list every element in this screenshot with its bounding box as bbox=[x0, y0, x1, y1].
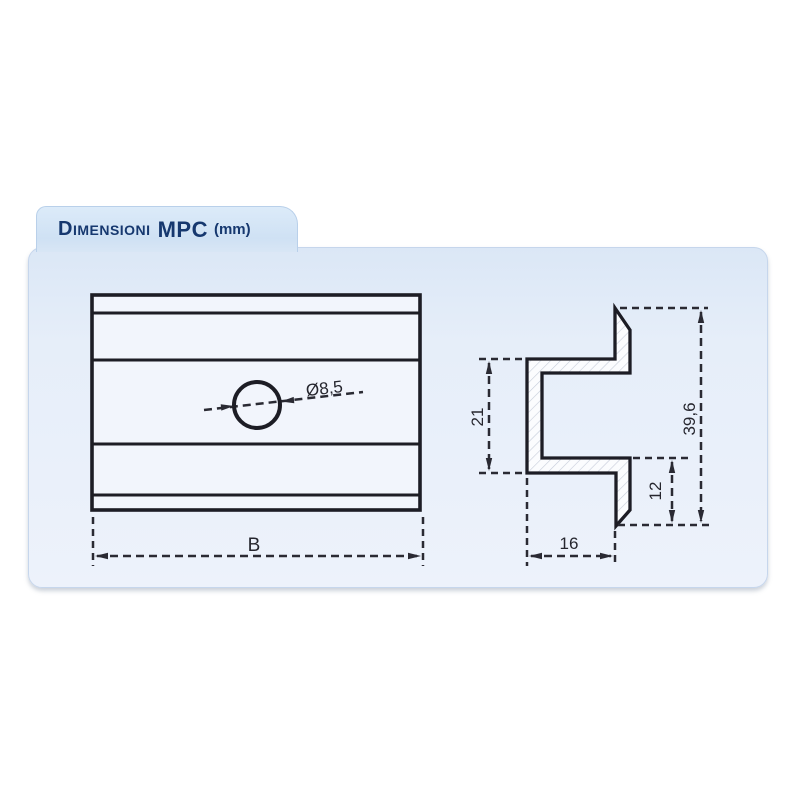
side-view: 21 39,6 12 bbox=[468, 308, 710, 566]
page: Dimensioni MPC (mm) Ø8,5 bbox=[0, 0, 800, 800]
depth-dimension-label: 16 bbox=[560, 534, 579, 553]
dimension-arrow bbox=[95, 553, 108, 559]
dimension-12: 12 bbox=[633, 458, 689, 523]
unit-label: (mm) bbox=[214, 221, 251, 238]
dimension-arrow bbox=[669, 460, 675, 473]
width-dimension-label: B bbox=[248, 535, 261, 556]
dimension-16: 16 bbox=[527, 478, 615, 566]
plate-outline bbox=[92, 295, 420, 510]
lip-height-label: 12 bbox=[646, 482, 665, 501]
dimension-arrow bbox=[669, 510, 675, 523]
dimension-arrow bbox=[600, 553, 613, 559]
dimension-arrow bbox=[698, 310, 704, 323]
dimension-arrow bbox=[408, 553, 421, 559]
dimension-arrow bbox=[698, 510, 704, 523]
section-header-tab: Dimensioni MPC (mm) bbox=[36, 206, 298, 252]
dimension-arrow bbox=[486, 361, 492, 374]
web-height-label: 21 bbox=[468, 408, 487, 427]
dimension-arrow bbox=[486, 458, 492, 471]
dimension-21: 21 bbox=[468, 359, 524, 473]
product-name: MPC bbox=[158, 217, 208, 243]
total-height-label: 39,6 bbox=[680, 402, 699, 435]
dimension-arrow bbox=[529, 553, 542, 559]
section-title: Dimensioni bbox=[58, 218, 151, 241]
front-view: Ø8,5 B bbox=[92, 295, 423, 566]
technical-drawing: Ø8,5 B 21 bbox=[28, 247, 768, 588]
dimension-b: B bbox=[93, 517, 423, 566]
profile-section-outline bbox=[527, 308, 630, 526]
